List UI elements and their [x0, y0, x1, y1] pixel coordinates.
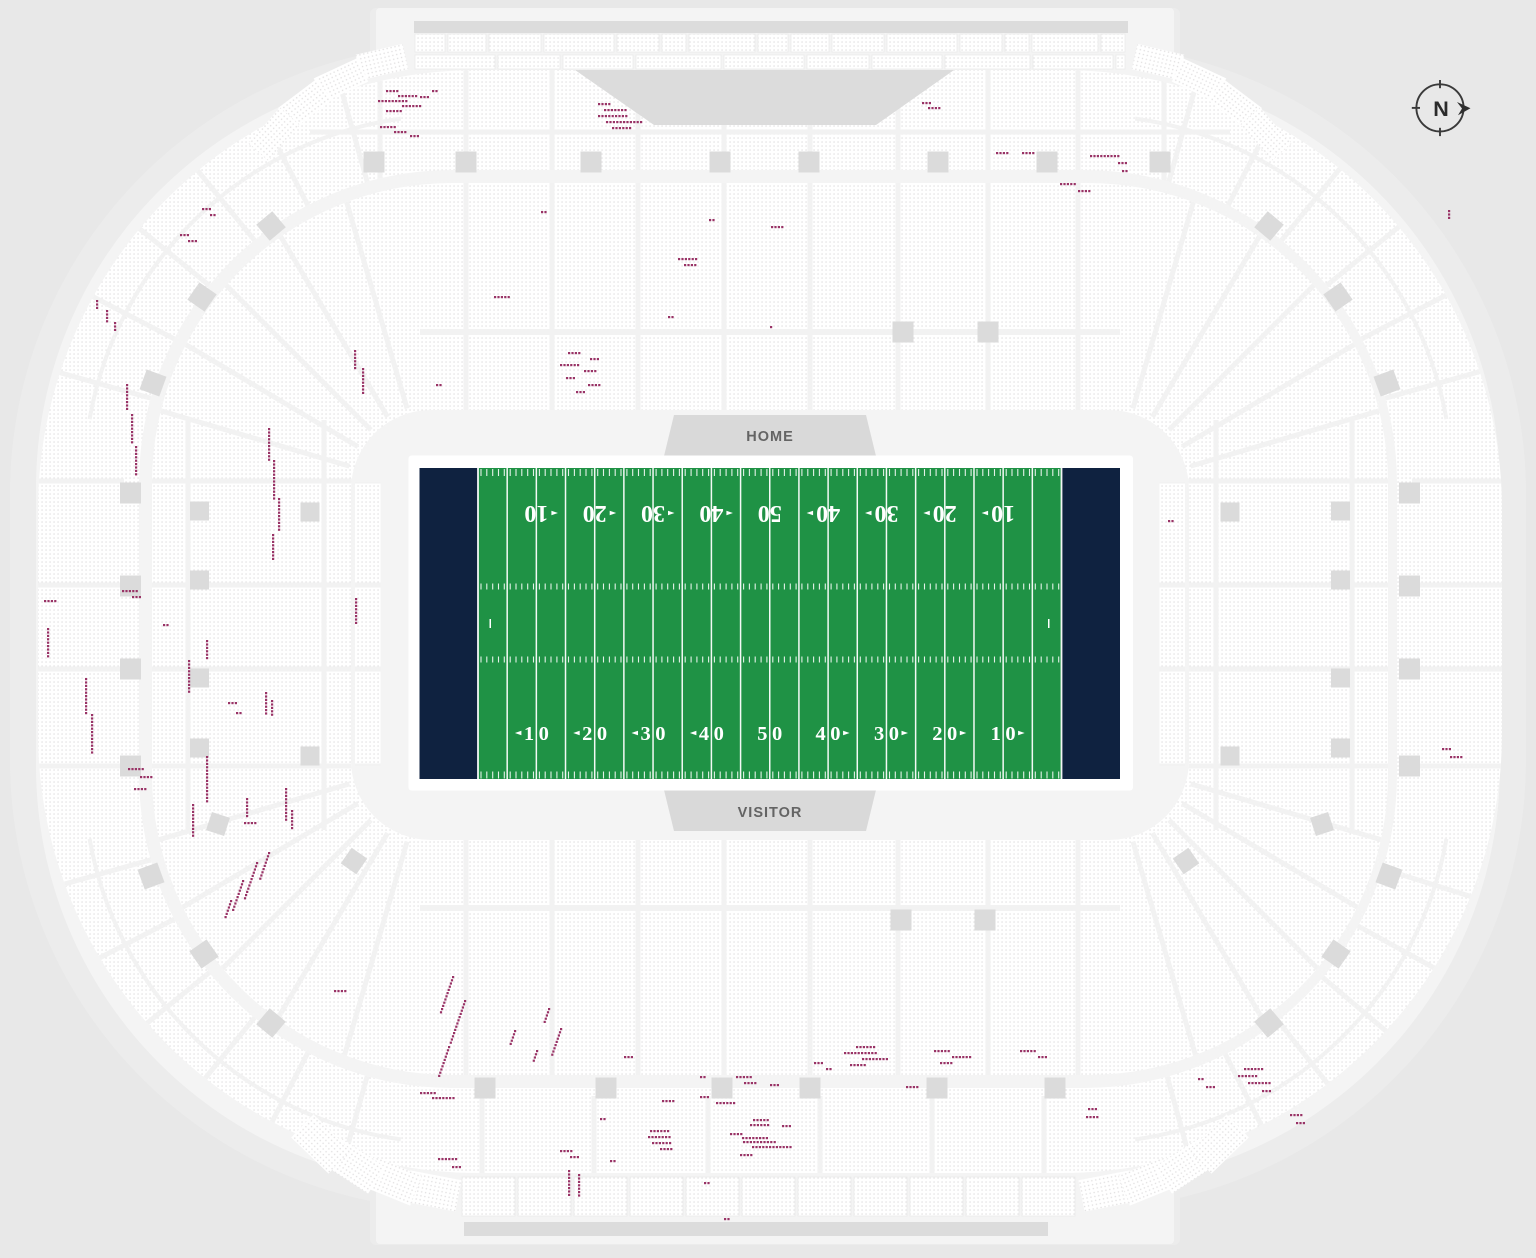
svg-text:30: 30 — [641, 500, 665, 526]
svg-text:VISITOR: VISITOR — [738, 805, 803, 821]
svg-text:N: N — [1433, 97, 1449, 121]
svg-text:50: 50 — [757, 723, 787, 745]
svg-text:50: 50 — [758, 500, 782, 526]
svg-text:HOME: HOME — [746, 429, 794, 445]
svg-text:10: 10 — [524, 500, 548, 526]
svg-text:40: 40 — [816, 723, 846, 745]
svg-text:20: 20 — [582, 723, 612, 745]
svg-text:10: 10 — [991, 500, 1015, 526]
svg-text:20: 20 — [583, 500, 607, 526]
svg-text:40: 40 — [699, 723, 729, 745]
svg-text:10: 10 — [524, 723, 554, 745]
svg-text:10: 10 — [991, 723, 1021, 745]
svg-text:40: 40 — [699, 500, 723, 526]
svg-text:30: 30 — [874, 723, 904, 745]
svg-text:30: 30 — [640, 723, 670, 745]
svg-text:40: 40 — [816, 500, 840, 526]
svg-text:20: 20 — [933, 500, 957, 526]
svg-text:20: 20 — [932, 723, 962, 745]
svg-text:30: 30 — [875, 500, 899, 526]
